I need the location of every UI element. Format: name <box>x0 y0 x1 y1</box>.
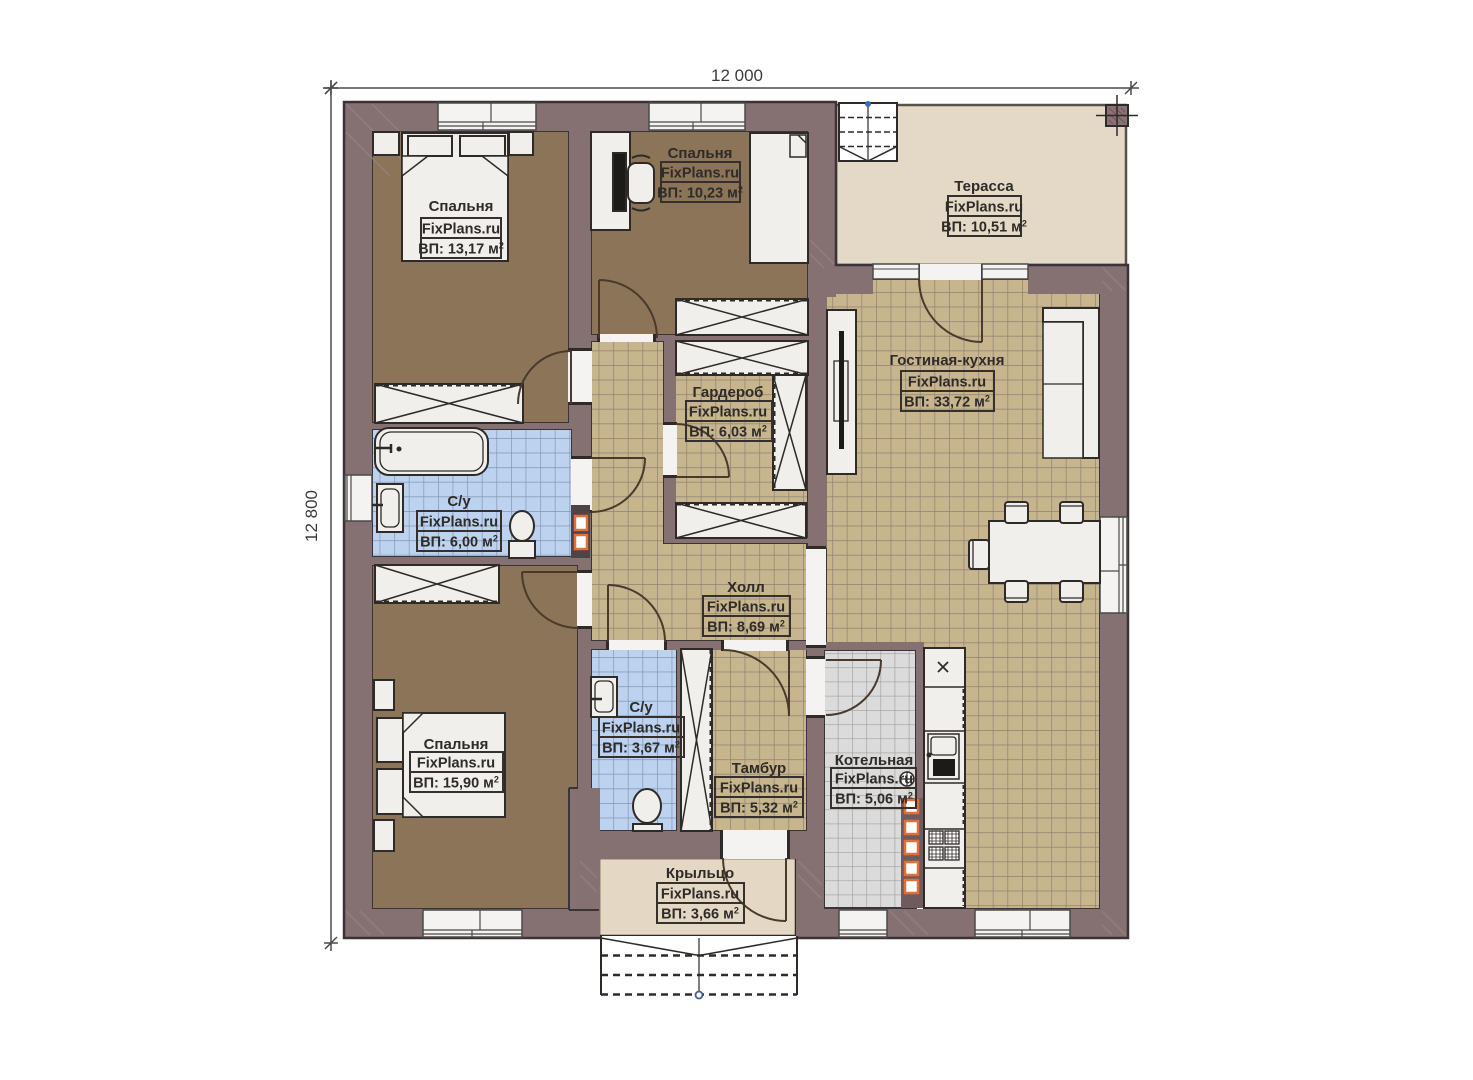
svg-text:FixPlans.ru: FixPlans.ru <box>661 887 739 903</box>
svg-text:FixPlans.ru: FixPlans.ru <box>661 166 739 182</box>
svg-text:ВП: 6,03 м2: ВП: 6,03 м2 <box>689 424 767 441</box>
svg-text:Котельная: Котельная <box>835 752 914 769</box>
svg-text:Гардероб: Гардероб <box>693 384 764 401</box>
svg-text:Спальня: Спальня <box>424 736 489 753</box>
svg-text:ВП: 5,06 м2: ВП: 5,06 м2 <box>835 791 913 808</box>
svg-text:ВП: 6,00 м2: ВП: 6,00 м2 <box>420 534 498 551</box>
svg-text:Спальня: Спальня <box>429 198 494 215</box>
svg-text:ВП: 10,51 м2: ВП: 10,51 м2 <box>941 219 1027 236</box>
svg-text:ВП: 3,66 м2: ВП: 3,66 м2 <box>661 906 739 923</box>
svg-text:FixPlans.ru: FixPlans.ru <box>707 600 785 616</box>
svg-text:FixPlans.ru: FixPlans.ru <box>422 222 500 238</box>
svg-text:Спальня: Спальня <box>668 145 733 162</box>
svg-text:ВП: 33,72 м2: ВП: 33,72 м2 <box>904 394 990 411</box>
svg-text:FixPlans.ru: FixPlans.ru <box>417 756 495 772</box>
svg-text:FixPlans.ru: FixPlans.ru <box>720 781 798 797</box>
svg-text:ВП: 5,32 м2: ВП: 5,32 м2 <box>720 800 798 817</box>
svg-text:Холл: Холл <box>727 579 765 596</box>
svg-text:Тамбур: Тамбур <box>732 760 786 777</box>
svg-text:12 800: 12 800 <box>302 490 321 542</box>
svg-text:12 000: 12 000 <box>711 66 763 85</box>
svg-text:С/у: С/у <box>629 699 653 716</box>
svg-text:Крыльцо: Крыльцо <box>666 865 734 882</box>
svg-text:FixPlans.ru: FixPlans.ru <box>689 405 767 421</box>
svg-text:ВП: 13,17 м2: ВП: 13,17 м2 <box>418 241 504 258</box>
svg-text:FixPlans.ru: FixPlans.ru <box>835 772 913 788</box>
svg-text:FixPlans.ru: FixPlans.ru <box>420 515 498 531</box>
svg-text:Терасса: Терасса <box>954 178 1014 195</box>
svg-text:ВП: 10,23 м2: ВП: 10,23 м2 <box>657 185 743 202</box>
svg-text:Гостиная-кухня: Гостиная-кухня <box>890 352 1005 369</box>
svg-text:FixPlans.ru: FixPlans.ru <box>908 375 986 391</box>
svg-text:FixPlans.ru: FixPlans.ru <box>602 721 680 737</box>
svg-text:ВП: 8,69 м2: ВП: 8,69 м2 <box>707 619 785 636</box>
svg-text:FixPlans.ru: FixPlans.ru <box>945 200 1023 216</box>
svg-text:С/у: С/у <box>447 493 471 510</box>
svg-text:ВП: 15,90 м2: ВП: 15,90 м2 <box>413 775 499 792</box>
svg-text:ВП: 3,67 м2: ВП: 3,67 м2 <box>602 740 680 757</box>
